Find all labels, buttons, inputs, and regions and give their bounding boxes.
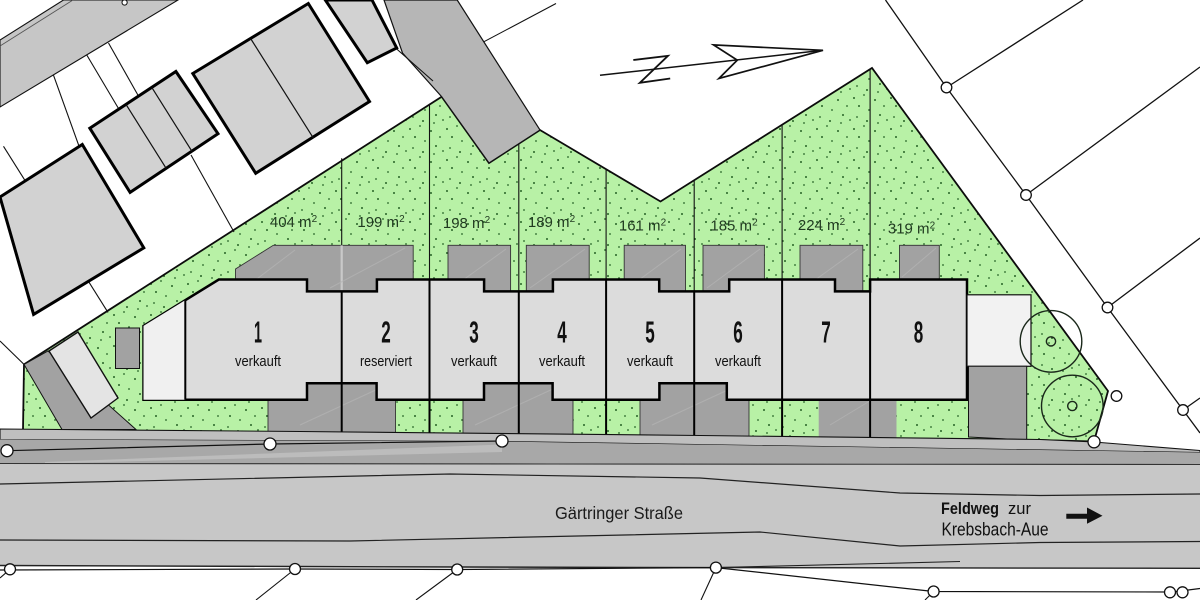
- svg-text:189 m2: 189 m2: [528, 214, 576, 231]
- svg-text:Gärtringer Straße: Gärtringer Straße: [555, 503, 683, 523]
- svg-text:8: 8: [914, 315, 924, 350]
- svg-text:2: 2: [381, 315, 391, 350]
- svg-text:5: 5: [645, 315, 655, 350]
- svg-text:verkauft: verkauft: [715, 353, 762, 370]
- svg-text:verkauft: verkauft: [539, 353, 586, 370]
- svg-text:404 m2: 404 m2: [270, 214, 318, 231]
- svg-text:Feldweg: Feldweg: [941, 499, 999, 518]
- svg-text:161 m2: 161 m2: [619, 218, 667, 235]
- svg-text:198 m2: 198 m2: [443, 215, 491, 232]
- svg-text:Krebsbach-Aue: Krebsbach-Aue: [942, 520, 1049, 540]
- svg-text:199 m2: 199 m2: [357, 214, 405, 231]
- svg-text:224 m2: 224 m2: [798, 217, 846, 234]
- svg-text:1: 1: [254, 315, 262, 350]
- svg-text:reserviert: reserviert: [360, 353, 413, 370]
- svg-text:7: 7: [821, 315, 831, 350]
- svg-text:zur: zur: [1008, 499, 1031, 518]
- svg-text:verkauft: verkauft: [235, 353, 282, 370]
- svg-text:319 m2: 319 m2: [888, 221, 936, 238]
- svg-text:4: 4: [557, 315, 567, 350]
- svg-text:6: 6: [733, 315, 743, 350]
- svg-text:verkauft: verkauft: [451, 353, 498, 370]
- svg-text:3: 3: [469, 315, 479, 350]
- svg-text:185 m2: 185 m2: [710, 218, 758, 235]
- svg-text:verkauft: verkauft: [627, 353, 674, 370]
